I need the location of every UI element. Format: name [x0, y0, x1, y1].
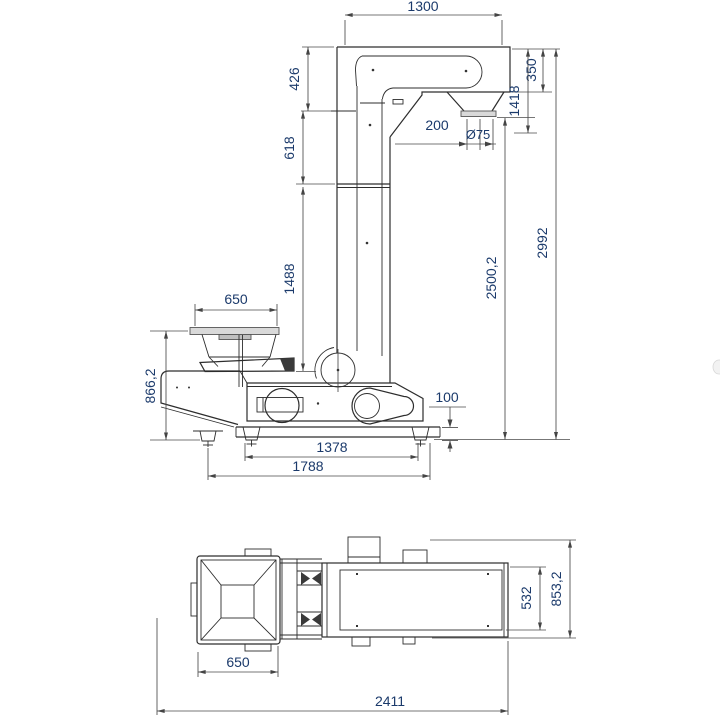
plan-bottom-tab [403, 637, 415, 644]
dim-foot-spacing: 1378 [316, 439, 347, 455]
plan-bottom-tab [352, 637, 370, 646]
center-mark [369, 124, 372, 127]
plan-hopper [191, 549, 280, 651]
dim-head-to-outlet: 1418 [506, 85, 522, 116]
dim-head-width: 1300 [407, 0, 438, 14]
tray-end-plate [280, 358, 294, 371]
plan-bracket [280, 559, 322, 639]
bolt-mark [188, 387, 190, 389]
dim-mid-column: 1488 [281, 263, 297, 294]
dim-head-left-drop: 426 [286, 67, 302, 91]
dim-overall-width: 853,2 [548, 571, 564, 606]
feed-hopper [190, 328, 294, 388]
technical-drawing-canvas: 1300 426 618 1488 650 866,2 [0, 0, 720, 722]
edge-artifact [713, 360, 720, 374]
plan-column-stub [348, 537, 380, 563]
base-conveyor [200, 348, 440, 448]
dim-outlet-diameter: Ø75 [466, 127, 491, 142]
boot-housing [161, 371, 247, 431]
plan-access-box [403, 550, 427, 563]
center-mark [317, 402, 319, 404]
dim-hopper-width: 650 [224, 291, 248, 307]
dim-plan-hopper-width: 650 [226, 654, 250, 670]
dim-upper-column: 618 [281, 136, 297, 160]
elevator-head [331, 47, 510, 137]
elevator-column [337, 47, 390, 383]
brace-mark [312, 572, 321, 585]
dim-foot-height: 100 [435, 389, 459, 405]
dim-outlet-height: 2500,2 [483, 256, 499, 299]
dim-outlet-width: 200 [425, 117, 449, 133]
dim-base-length: 1788 [292, 458, 323, 474]
dim-hopper-height: 866,2 [142, 368, 158, 403]
brace-mark [301, 572, 310, 585]
dim-total-height: 2992 [534, 227, 550, 258]
elevator-dimensional-drawing: 1300 426 618 1488 650 866,2 [0, 0, 720, 722]
center-mark [366, 242, 369, 245]
brace-mark [312, 613, 321, 626]
side-elevation-view: 1300 426 618 1488 650 866,2 [142, 0, 570, 480]
center-mark [465, 70, 468, 73]
corner-mark [356, 625, 358, 627]
dim-conveyor-width: 532 [518, 586, 534, 610]
belt-tension-drum [352, 388, 414, 424]
arrowhead [448, 441, 453, 449]
bolt-mark [176, 387, 178, 389]
top-plan-view: 650 2411 532 853,2 [157, 537, 576, 715]
drive-drum [257, 389, 303, 423]
dim-overall-length: 2411 [375, 693, 405, 709]
plan-conveyor-body [322, 537, 508, 646]
brace-mark [301, 613, 310, 626]
plan-view-dimensions: 650 2411 532 853,2 [157, 540, 576, 715]
dim-head-height: 350 [523, 58, 539, 82]
column-base-drum [315, 348, 355, 393]
center-mark [372, 69, 375, 72]
arrowhead [459, 142, 467, 147]
corner-mark [487, 573, 489, 575]
corner-mark [356, 573, 358, 575]
arrowhead [485, 142, 493, 147]
discharge-outlet [447, 92, 504, 117]
vibrating-tray [200, 358, 294, 372]
corner-mark [487, 625, 489, 627]
arrowhead [448, 420, 453, 428]
